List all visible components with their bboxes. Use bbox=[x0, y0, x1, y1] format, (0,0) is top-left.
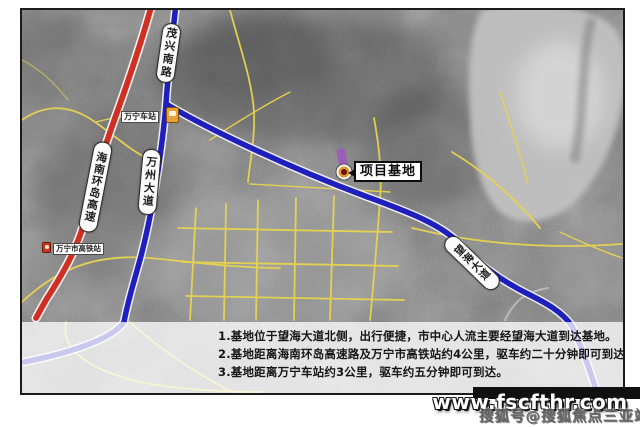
page-root: { "map": { "site_label": "项目基地", "road_l… bbox=[0, 0, 640, 427]
caption-line-3: 3.基地距离万宁车站约3公里，驱车约五分钟即可到达。 bbox=[218, 363, 620, 381]
rail-station-icon bbox=[42, 242, 51, 253]
bus-station-icon bbox=[166, 107, 179, 123]
caption-line-1: 1.基地位于望海大道北侧，出行便捷，市中心人流主要经望海大道到达基地。 bbox=[218, 327, 620, 345]
caption-line-2: 2.基地距离海南环岛高速路及万宁市高铁站约4公里，驱车约二十分钟即可到达。 bbox=[218, 345, 620, 363]
station-label-wanning: 万宁车站 bbox=[121, 111, 159, 123]
station-label-wanning-hsr: 万宁市高铁站 bbox=[53, 243, 104, 255]
project-site-label: 项目基地 bbox=[354, 161, 422, 182]
caption-panel: 1.基地位于望海大道北侧，出行便捷，市中心人流主要经望海大道到达基地。 2.基地… bbox=[218, 327, 620, 381]
map-frame: 茂兴南路 海南环岛高速 万州大道 望海大道 万宁车站 万宁市高铁站 项目基地 1… bbox=[20, 8, 625, 395]
watermark-credit: 搜狐号@搜狐焦点三亚站 bbox=[479, 405, 640, 426]
